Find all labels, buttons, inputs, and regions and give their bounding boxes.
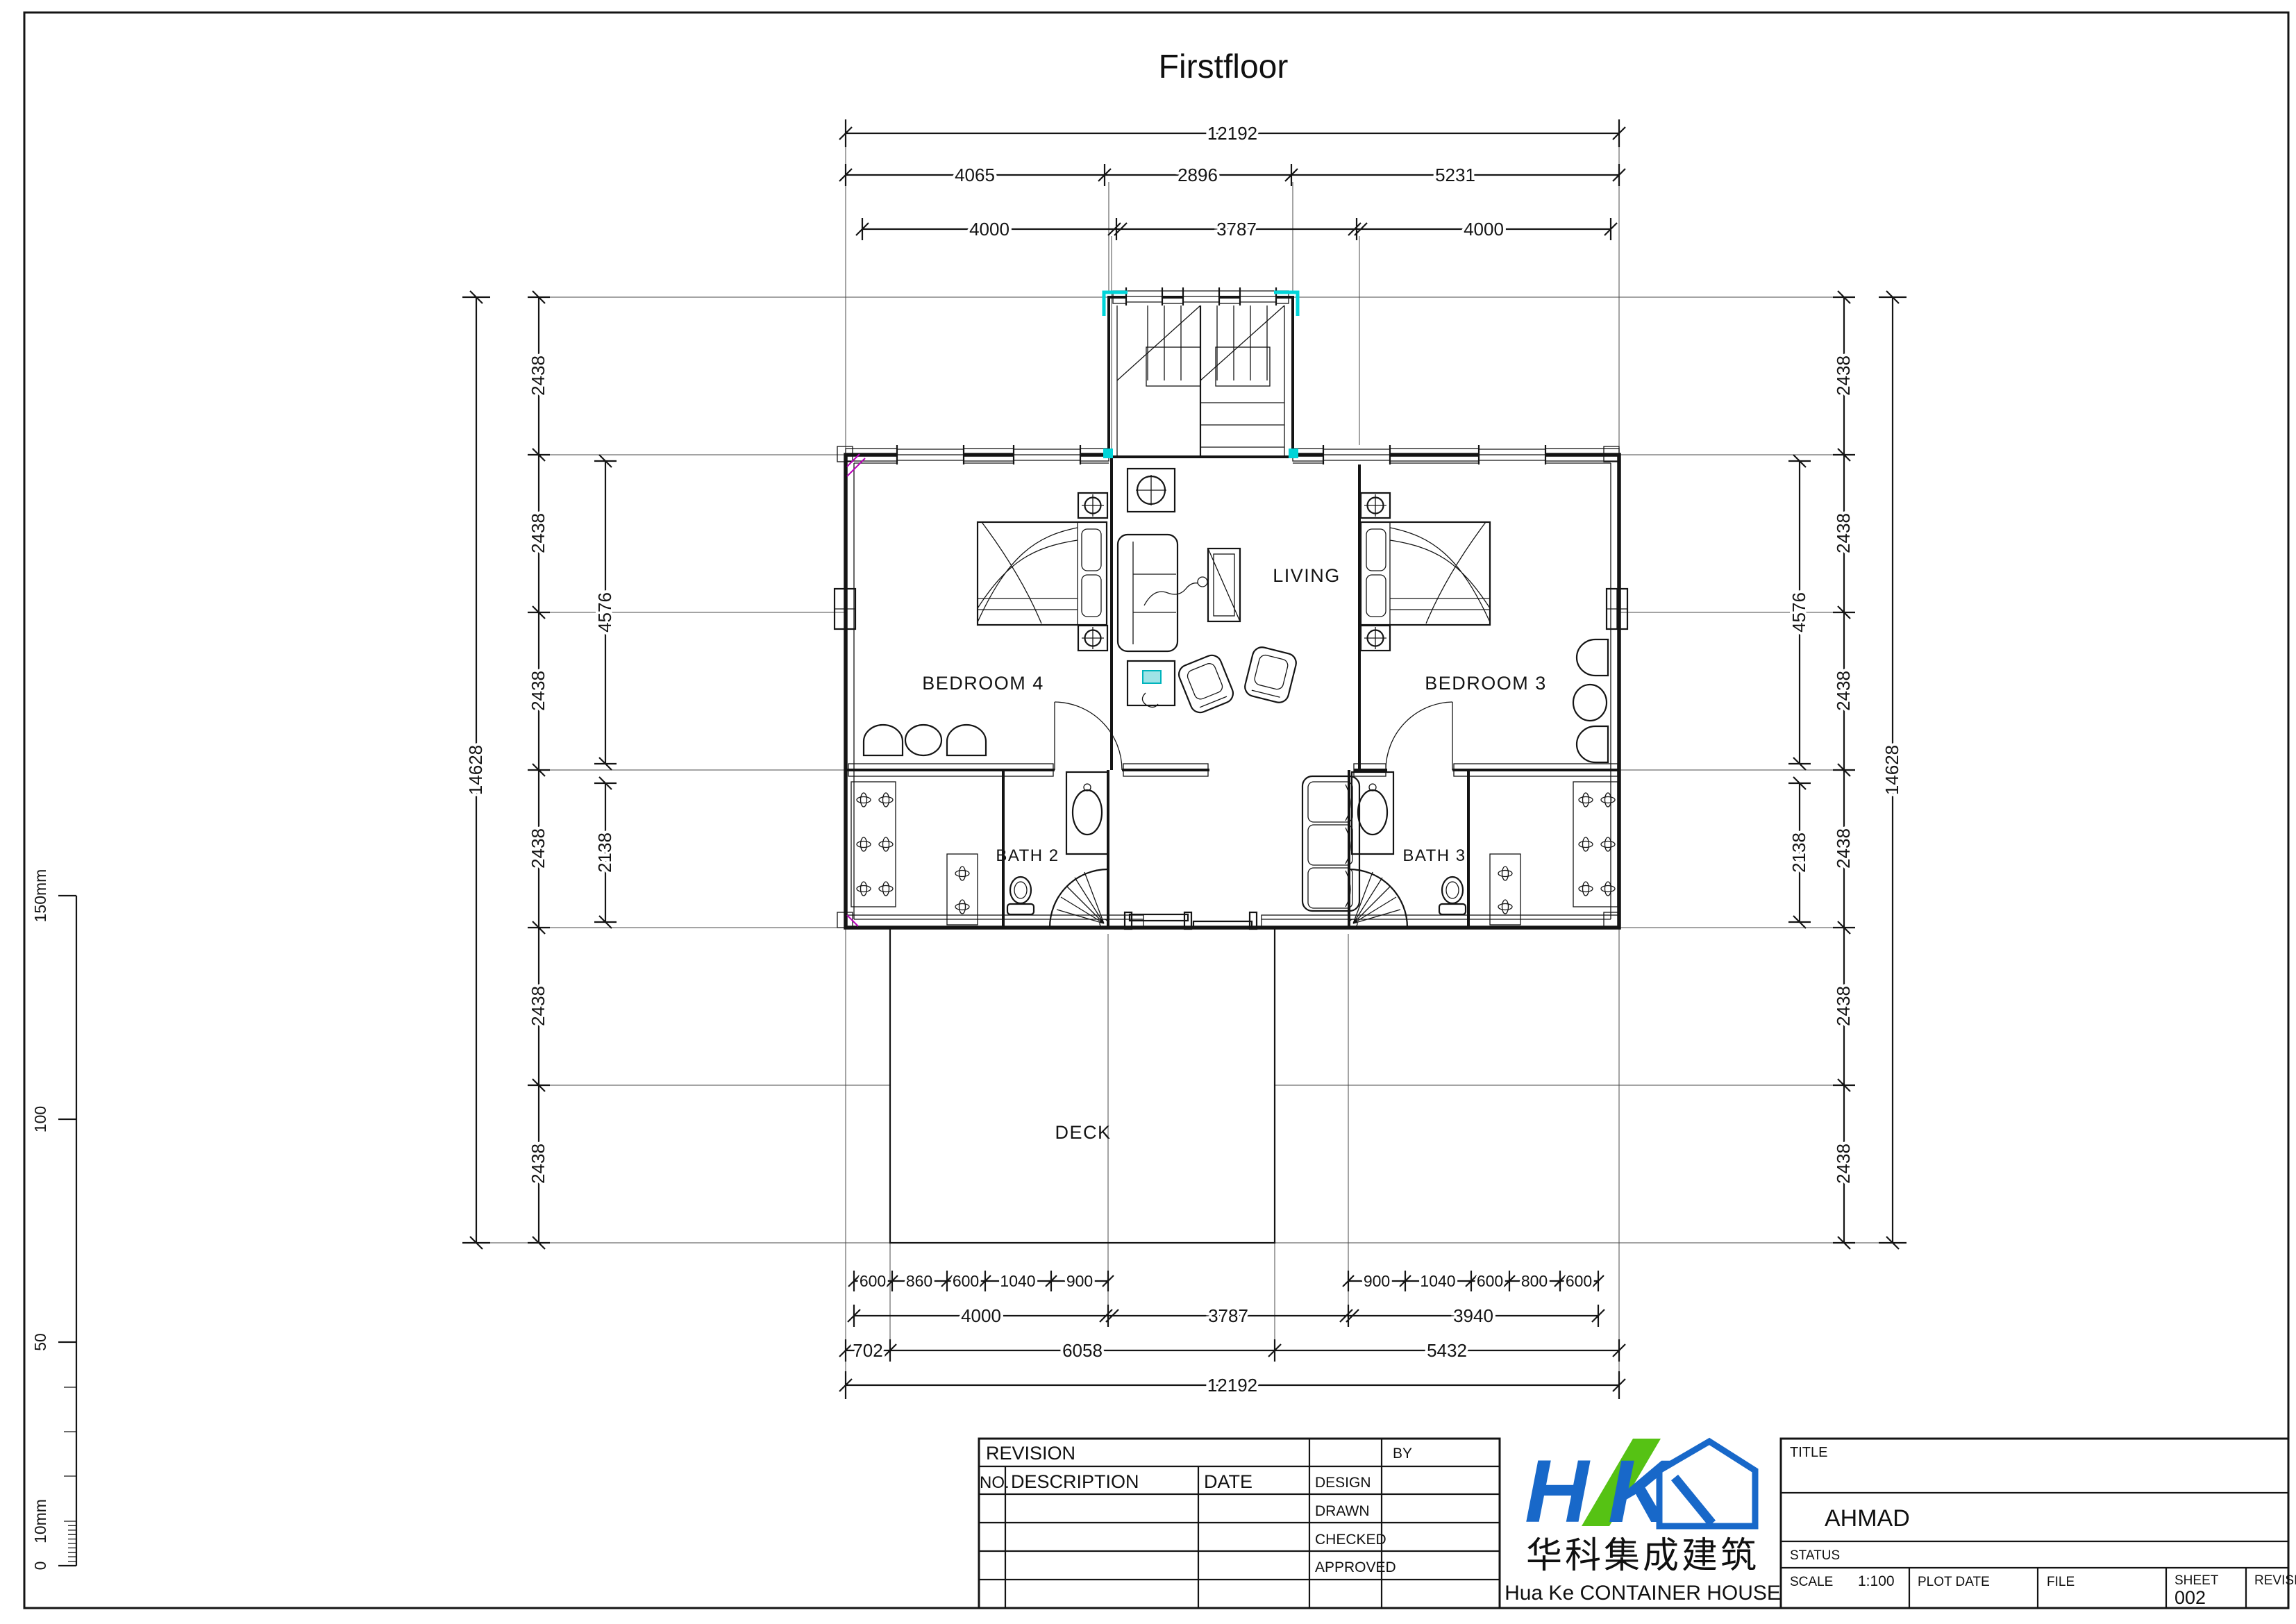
dim-label: 600 bbox=[953, 1272, 979, 1290]
dim-label: 2438 bbox=[528, 986, 548, 1026]
titleblock-project: AHMAD bbox=[1825, 1505, 1910, 1532]
dim-label: 4000 bbox=[1464, 219, 1504, 240]
titleblock-revision-label: REVISION bbox=[2254, 1573, 2296, 1588]
dim-label: 2138 bbox=[1788, 832, 1809, 873]
dim-label: 3940 bbox=[1453, 1305, 1493, 1326]
dim-label: 14628 bbox=[465, 745, 486, 795]
titleblock-status-label: STATUS bbox=[1790, 1548, 1840, 1563]
ruler-0: 0 bbox=[31, 1562, 49, 1571]
dim-label: 14628 bbox=[1882, 745, 1902, 795]
sheet-border bbox=[24, 12, 2288, 1608]
company-logo: H K 华科集成建筑 Hua Ke CONTAINER HOUSE bbox=[1505, 1439, 1781, 1605]
dim-label: 6058 bbox=[1062, 1340, 1103, 1361]
dim-label: 1040 bbox=[1420, 1272, 1455, 1290]
floorplan-sheet: Firstfloor 150mm 100 50 10mm 0 12192 406… bbox=[0, 0, 2296, 1624]
dim-top: 12192 4065 2896 5231 4000 3787 4000 bbox=[839, 119, 1625, 240]
dim-label: 2438 bbox=[1833, 1144, 1854, 1184]
dim-label: 3787 bbox=[1216, 219, 1257, 240]
dim-label: 702 bbox=[853, 1340, 882, 1361]
revision-design: DESIGN bbox=[1315, 1475, 1371, 1491]
dim-label: 2896 bbox=[1178, 165, 1218, 185]
bedroom3-furniture: BEDROOM 3 bbox=[1361, 493, 1608, 762]
scale-ruler: 150mm 100 50 10mm 0 bbox=[31, 869, 76, 1571]
ruler-10: 10mm bbox=[31, 1499, 49, 1543]
bath3-label: BATH 3 bbox=[1402, 846, 1466, 865]
dim-label: 2438 bbox=[528, 828, 548, 869]
ruler-150: 150mm bbox=[31, 869, 49, 923]
dim-label: 3787 bbox=[1208, 1305, 1248, 1326]
revision-table: REVISION BY NO. DESCRIPTION DATE DESIGN … bbox=[979, 1439, 1500, 1608]
dim-label: 4000 bbox=[961, 1305, 1001, 1326]
revision-no: NO. bbox=[980, 1473, 1009, 1492]
building-walls bbox=[835, 287, 1627, 929]
dim-label: 4065 bbox=[955, 165, 995, 185]
revision-by: BY bbox=[1393, 1446, 1412, 1462]
dim-label: 2438 bbox=[528, 513, 548, 553]
revision-date: DATE bbox=[1204, 1471, 1252, 1492]
dim-label: 4576 bbox=[1788, 592, 1809, 633]
deck-label: DECK bbox=[1055, 1122, 1111, 1143]
dim-label: 2438 bbox=[1833, 671, 1854, 711]
dim-label: 4576 bbox=[594, 592, 615, 633]
dim-label: 600 bbox=[860, 1272, 886, 1290]
dim-label: 12192 bbox=[1207, 123, 1257, 144]
dim-label: 600 bbox=[1477, 1272, 1503, 1290]
company-name-cn: 华科集成建筑 bbox=[1526, 1536, 1759, 1576]
ruler-50: 50 bbox=[31, 1333, 49, 1351]
dim-label: 1040 bbox=[1000, 1272, 1035, 1290]
revision-approved: APPROVED bbox=[1315, 1559, 1396, 1575]
dim-bottom: 600 860 600 1040 900 900 1040 600 800 60… bbox=[839, 1271, 1625, 1399]
logo-h: H bbox=[1525, 1442, 1591, 1541]
revision-header: REVISION bbox=[986, 1443, 1075, 1464]
bedroom4-label: BEDROOM 4 bbox=[922, 673, 1044, 694]
dim-label: 2438 bbox=[528, 1144, 548, 1184]
hall-couch bbox=[1302, 776, 1359, 911]
dim-label: 5432 bbox=[1427, 1340, 1467, 1361]
dim-label: 2438 bbox=[1833, 513, 1854, 553]
dim-label: 900 bbox=[1066, 1272, 1093, 1290]
dim-label: 12192 bbox=[1207, 1375, 1257, 1396]
dim-label: 4000 bbox=[969, 219, 1009, 240]
sign-box bbox=[1128, 661, 1175, 708]
bedroom3-label: BEDROOM 3 bbox=[1425, 673, 1547, 694]
dim-label: 2438 bbox=[1833, 828, 1854, 869]
titleblock-title-label: TITLE bbox=[1790, 1445, 1827, 1460]
bath2: BATH 2 bbox=[996, 772, 1108, 928]
dim-label: 5231 bbox=[1435, 165, 1475, 185]
dim-label: 2138 bbox=[594, 832, 615, 873]
dim-label: 800 bbox=[1521, 1272, 1548, 1290]
deck: DECK bbox=[890, 928, 1275, 1243]
titleblock-plotdate-label: PLOT DATE bbox=[1918, 1575, 1990, 1589]
titleblock-scale-label: SCALE bbox=[1790, 1575, 1833, 1589]
titleblock-sheet-number: 002 bbox=[2175, 1587, 2206, 1608]
dim-label: 2438 bbox=[528, 355, 548, 396]
living-furniture: LIVING bbox=[1118, 469, 1341, 715]
dim-label: 2438 bbox=[1833, 355, 1854, 396]
closets bbox=[851, 782, 1618, 925]
staircase bbox=[1109, 287, 1293, 457]
titleblock-sheet-label: SHEET bbox=[2175, 1573, 2219, 1588]
company-name-en: Hua Ke CONTAINER HOUSE bbox=[1505, 1582, 1781, 1605]
bath3: BATH 3 bbox=[1349, 772, 1466, 928]
revision-drawn: DRAWN bbox=[1315, 1503, 1370, 1519]
revision-checked: CHECKED bbox=[1315, 1532, 1386, 1548]
drawing-title: Firstfloor bbox=[1159, 49, 1289, 85]
extension-lines bbox=[469, 142, 1897, 1382]
dim-label: 860 bbox=[906, 1272, 932, 1290]
revision-description: DESCRIPTION bbox=[1011, 1471, 1139, 1492]
dim-label: 2438 bbox=[528, 671, 548, 711]
bedroom4-furniture: BEDROOM 4 bbox=[864, 493, 1107, 755]
titleblock-file-label: FILE bbox=[2047, 1575, 2075, 1589]
living-label: LIVING bbox=[1273, 565, 1341, 586]
dim-label: 2438 bbox=[1833, 986, 1854, 1026]
stair-windows bbox=[1126, 287, 1276, 305]
dim-label: 900 bbox=[1364, 1272, 1390, 1290]
dim-label: 600 bbox=[1566, 1272, 1592, 1290]
bath2-label: BATH 2 bbox=[996, 846, 1059, 865]
titleblock-scale-value: 1:100 bbox=[1858, 1573, 1895, 1589]
title-block: TITLE AHMAD STATUS SCALE 1:100 PLOT DATE… bbox=[1781, 1439, 2296, 1608]
ruler-100: 100 bbox=[31, 1106, 49, 1132]
